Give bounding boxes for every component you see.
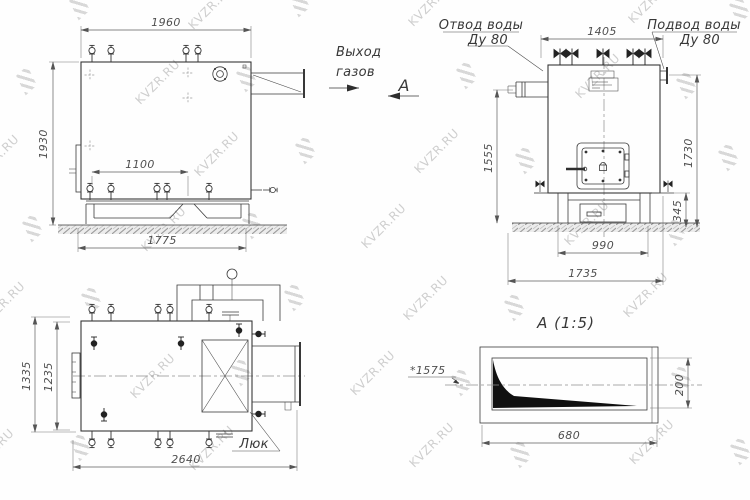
section-view: А (1:5) *1575 680 200 <box>408 314 702 447</box>
drain-valve-icon <box>206 183 212 200</box>
valve-icon <box>108 304 114 321</box>
side-view: 1960 1930 1100 1775 <box>37 16 304 252</box>
water-inlet-flange <box>660 67 667 84</box>
section-arrow-label: А <box>398 76 410 95</box>
gas-exit-annotation: Выход газов <box>329 45 381 92</box>
exhaust-duct <box>251 69 304 98</box>
vent-pipe-icon <box>227 269 237 279</box>
dim-side-width: 1960 <box>151 16 181 29</box>
water-outlet-pipe <box>508 82 548 97</box>
crosshair-mark <box>85 141 96 152</box>
flange-port-icon <box>213 67 227 81</box>
valve-icon <box>206 304 212 321</box>
dim-plan-inner-height: 1235 <box>42 362 55 392</box>
door-hinge <box>625 154 629 160</box>
valve-icon <box>252 411 265 417</box>
valve-icon <box>167 304 173 321</box>
nameplate <box>589 71 618 91</box>
valve-icon <box>236 324 242 337</box>
valve-handwheel-icon <box>597 49 609 66</box>
valve-icon <box>89 45 95 62</box>
dim-front-width: 1405 <box>587 25 617 38</box>
drawing-canvas: KVZR.RUKVZR.RUKVZR.RUKVZR.RUKVZR.RUKVZR.… <box>0 0 750 500</box>
boiler-body-side <box>81 62 251 199</box>
drain-valve-icon <box>164 183 170 200</box>
valve-icon <box>155 431 161 448</box>
valve-handwheel-icon <box>639 49 651 66</box>
dim-base-height: 345 <box>671 200 684 222</box>
dim-section-height: 200 <box>673 374 686 396</box>
section-scale-note: *1575 <box>410 364 446 377</box>
door-lock-icon <box>600 162 607 170</box>
section-view-arrow-icon <box>388 93 400 100</box>
gas-exit-label-line2: газов <box>336 65 375 80</box>
valve-icon <box>178 337 184 350</box>
dim-base-width: 990 <box>592 239 614 252</box>
grate-wedge <box>493 360 637 408</box>
valve-icon <box>195 45 201 62</box>
drain-valve-icon <box>87 183 93 200</box>
valve-icon <box>108 45 114 62</box>
valve-icon <box>167 431 173 448</box>
drain-valve-icon <box>536 180 544 192</box>
section-direction-marker: А <box>388 76 419 100</box>
side-valve-icon <box>263 187 277 192</box>
valve-icon <box>252 331 265 337</box>
valve-icon <box>183 45 189 62</box>
dim-plan-width: 2640 <box>171 453 201 466</box>
valve-icon <box>91 337 97 350</box>
dim-side-height: 1930 <box>37 129 50 159</box>
plan-view: Люк 1335 1235 2640 <box>20 269 305 471</box>
furnace-door <box>566 143 629 189</box>
valve-icon <box>155 304 161 321</box>
valve-icon <box>89 304 95 321</box>
inlet-label-line1: Подвод воды <box>647 18 741 33</box>
top-piping <box>177 269 280 321</box>
flange-connection <box>216 312 239 437</box>
gas-flow-arrow-icon <box>347 85 359 92</box>
valve-icon <box>101 408 107 421</box>
valve-icon <box>89 431 95 448</box>
dim-front-left-height: 1555 <box>482 143 495 173</box>
dim-plan-outer-height: 1335 <box>20 361 33 391</box>
outlet-label-line1: Отвод воды <box>439 18 523 33</box>
leader-arrow-icon <box>453 380 459 385</box>
side-hatch-door <box>69 145 81 192</box>
ground-hatch <box>58 225 287 234</box>
dim-front-right-height: 1730 <box>682 138 695 168</box>
hatch-label: Люк <box>238 437 268 452</box>
ground-hatch <box>512 223 700 232</box>
dim-section-width: 680 <box>558 429 580 442</box>
dim-side-inner: 1100 <box>125 158 155 171</box>
boiler-technical-drawing: 1960 1930 1100 1775 Выход газов А <box>0 0 750 500</box>
valve-icon <box>206 431 212 448</box>
crosshair-mark <box>85 70 96 81</box>
plan-hatch-door <box>72 353 80 398</box>
drain-valve-icon <box>108 183 114 200</box>
dim-base-total: 1735 <box>568 267 598 280</box>
gas-exit-label-line1: Выход <box>336 45 381 60</box>
door-hinge <box>625 171 629 177</box>
drain-valve-icon <box>154 183 160 200</box>
dim-side-base: 1775 <box>147 234 177 247</box>
valve-handwheel-icon <box>554 49 566 66</box>
valve-handwheel-icon <box>627 49 639 66</box>
crosshair-mark <box>183 93 194 104</box>
front-view: Отвод воды Ду 80 Подвод воды Ду 80 1405 … <box>439 18 741 285</box>
drain-valve-icon <box>664 180 672 192</box>
valve-icon <box>108 431 114 448</box>
crosshair-mark <box>183 68 194 79</box>
inlet-label-line2: Ду 80 <box>679 33 720 48</box>
corner-mark <box>243 65 246 68</box>
support-frame <box>86 204 249 224</box>
section-title: А (1:5) <box>536 314 595 332</box>
valve-handwheel-icon <box>566 49 578 66</box>
